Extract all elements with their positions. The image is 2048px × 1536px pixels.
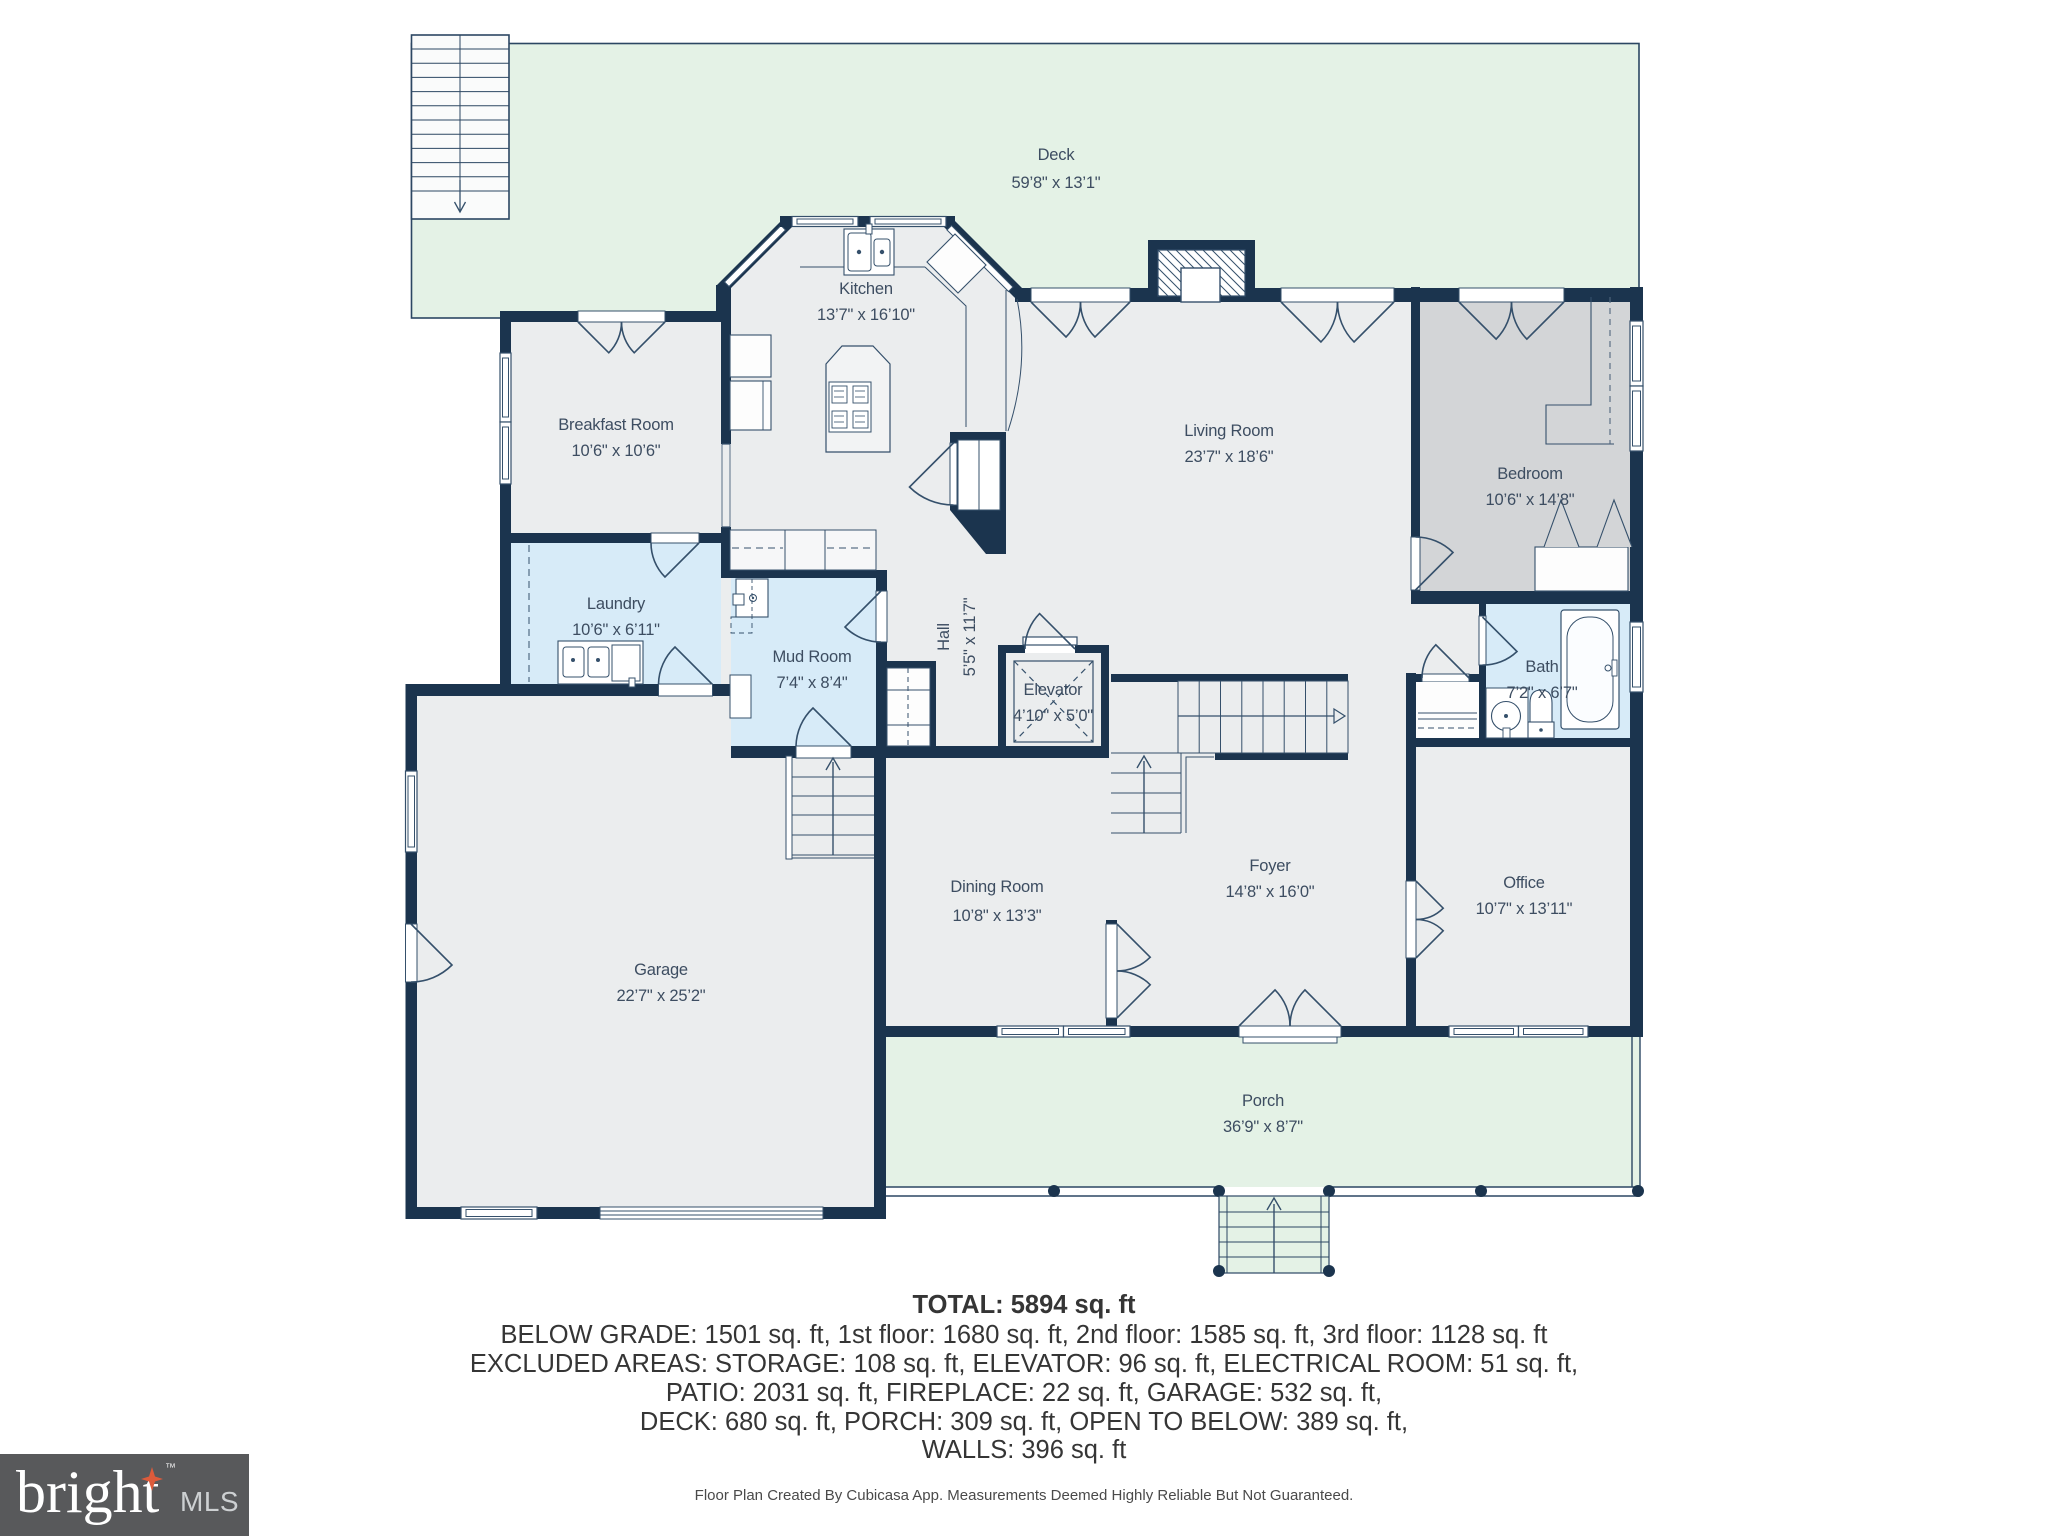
svg-text:59’8" x 13’1": 59’8" x 13’1"	[1012, 174, 1101, 192]
svg-text:Dining Room: Dining Room	[950, 878, 1043, 896]
svg-text:Hall: Hall	[935, 623, 953, 651]
svg-text:13’7" x 16’10": 13’7" x 16’10"	[817, 306, 915, 324]
svg-text:Garage: Garage	[634, 961, 688, 979]
svg-text:EXCLUDED AREAS: STORAGE: 108 s: EXCLUDED AREAS: STORAGE: 108 sq. ft, ELE…	[470, 1350, 1578, 1378]
svg-text:10’8" x 13’3": 10’8" x 13’3"	[953, 907, 1042, 925]
svg-text:Office: Office	[1503, 874, 1545, 892]
svg-text:10’6" x 14’8": 10’6" x 14’8"	[1486, 491, 1575, 509]
svg-text:36’9" x 8’7": 36’9" x 8’7"	[1223, 1118, 1303, 1136]
svg-text:DECK: 680 sq. ft, PORCH: 309 s: DECK: 680 sq. ft, PORCH: 309 sq. ft, OPE…	[640, 1408, 1408, 1436]
svg-text:MLS: MLS	[180, 1486, 239, 1517]
svg-text:5’5" x 11’7": 5’5" x 11’7"	[961, 597, 979, 676]
svg-text:10’6" x 6’11": 10’6" x 6’11"	[572, 621, 660, 639]
svg-text:WALLS: 396 sq. ft: WALLS: 396 sq. ft	[922, 1436, 1127, 1464]
svg-text:Floor Plan Created By Cubicasa: Floor Plan Created By Cubicasa App. Meas…	[695, 1487, 1354, 1504]
svg-text:Mud Room: Mud Room	[772, 648, 851, 666]
svg-text:Bath: Bath	[1525, 658, 1558, 676]
svg-text:Foyer: Foyer	[1249, 857, 1291, 875]
svg-text:™: ™	[165, 1462, 176, 1474]
svg-text:4’10" x 5’0": 4’10" x 5’0"	[1013, 707, 1093, 725]
svg-text:Elevator: Elevator	[1024, 681, 1084, 699]
svg-text:7’2" x 6’7": 7’2" x 6’7"	[1507, 684, 1578, 702]
svg-text:7’4" x 8’4": 7’4" x 8’4"	[777, 674, 848, 692]
svg-text:14’8" x 16’0": 14’8" x 16’0"	[1226, 883, 1315, 901]
svg-text:22’7" x 25’2": 22’7" x 25’2"	[617, 987, 706, 1005]
svg-text:10’6" x 10’6": 10’6" x 10’6"	[572, 442, 661, 460]
svg-text:Deck: Deck	[1038, 146, 1076, 164]
svg-text:PATIO: 2031 sq. ft, FIREPLACE:: PATIO: 2031 sq. ft, FIREPLACE: 22 sq. ft…	[666, 1379, 1382, 1407]
svg-text:Laundry: Laundry	[587, 595, 646, 613]
svg-text:Living Room: Living Room	[1184, 422, 1274, 440]
svg-text:TOTAL: 5894 sq. ft: TOTAL: 5894 sq. ft	[913, 1291, 1136, 1319]
svg-text:Porch: Porch	[1242, 1092, 1284, 1110]
svg-text:BELOW GRADE: 1501 sq. ft, 1st: BELOW GRADE: 1501 sq. ft, 1st floor: 168…	[501, 1321, 1548, 1349]
svg-text:Kitchen: Kitchen	[839, 280, 893, 298]
svg-text:bright: bright	[16, 1459, 160, 1525]
svg-text:Breakfast Room: Breakfast Room	[558, 416, 674, 434]
svg-text:Bedroom: Bedroom	[1497, 465, 1563, 483]
svg-text:23’7" x 18’6": 23’7" x 18’6"	[1185, 448, 1274, 466]
svg-text:10’7" x 13’11": 10’7" x 13’11"	[1476, 900, 1573, 918]
